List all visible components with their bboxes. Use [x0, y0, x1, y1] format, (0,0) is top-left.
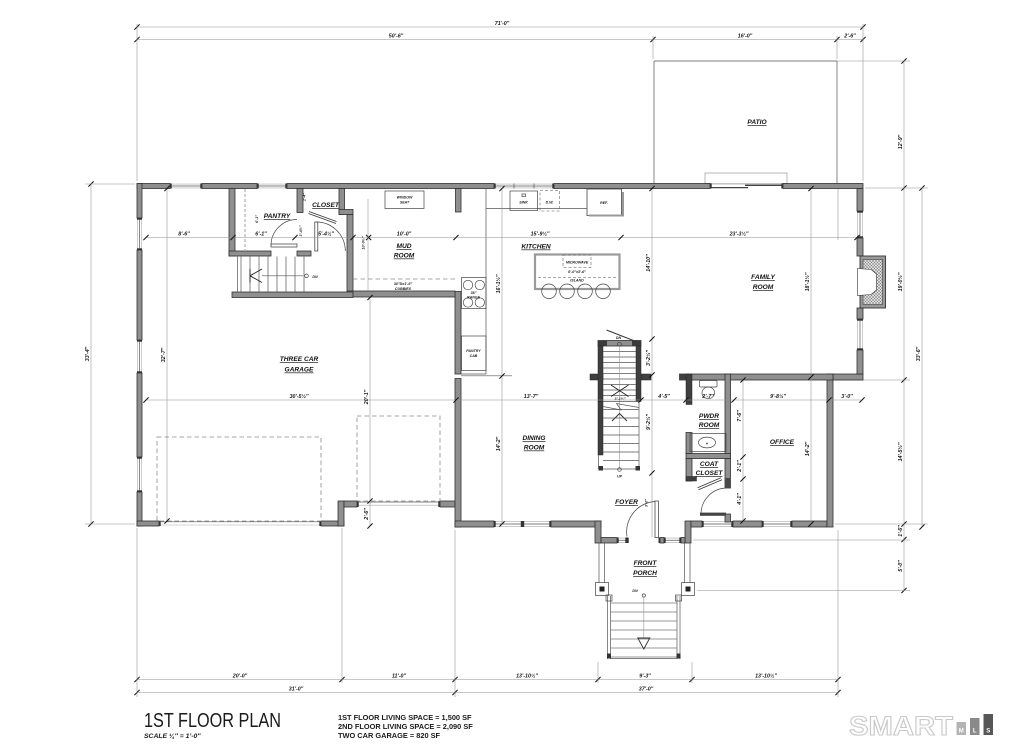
svg-text:OFFICE: OFFICE: [770, 439, 795, 446]
svg-text:4'-1″: 4'-1″: [737, 493, 743, 506]
svg-text:9'-3″: 9'-3″: [639, 673, 651, 679]
svg-text:ROOM: ROOM: [394, 253, 415, 260]
svg-text:14'-2″: 14'-2″: [805, 441, 811, 456]
svg-text:MUD: MUD: [396, 243, 411, 250]
svg-text:71'-0″: 71'-0″: [495, 21, 510, 27]
svg-text:31'-0″: 31'-0″: [289, 686, 304, 692]
svg-text:14'-2″: 14'-2″: [496, 436, 502, 451]
svg-text:WINDOW: WINDOW: [397, 196, 413, 200]
svg-text:3’-1½″: 3’-1½″: [615, 397, 626, 401]
svg-text:3'-2½″: 3'-2½″: [645, 350, 652, 366]
svg-text:2'-6″: 2'-6″: [364, 508, 370, 521]
svg-text:REF.: REF.: [600, 201, 608, 205]
svg-text:23'-3½″: 23'-3½″: [729, 230, 749, 237]
svg-text:ISLAND: ISLAND: [570, 279, 584, 283]
svg-text:1ST FLOOR PLAN: 1ST FLOOR PLAN: [144, 709, 281, 732]
svg-text:10’-0½″: 10’-0½″: [362, 236, 366, 249]
svg-text:D.W.: D.W.: [546, 201, 554, 205]
svg-text:11'-0″: 11'-0″: [392, 673, 406, 679]
svg-text:30'-5½″: 30'-5½″: [290, 393, 309, 400]
svg-text:33'-6″: 33'-6″: [916, 346, 922, 361]
svg-text:DN: DN: [312, 275, 318, 279]
svg-text:4'-5″: 4'-5″: [657, 394, 670, 400]
svg-text:5'-0″: 5'-0″: [898, 560, 904, 572]
svg-text:THREE CAR: THREE CAR: [280, 356, 319, 363]
svg-text:S: S: [986, 729, 990, 735]
svg-text:COAT: COAT: [700, 461, 719, 468]
svg-text:2'-7″: 2'-7″: [701, 394, 714, 400]
svg-text:14'-5½″: 14'-5½″: [897, 442, 904, 461]
svg-text:DINING: DINING: [522, 435, 545, 442]
svg-text:FOYER: FOYER: [615, 499, 638, 506]
svg-text:2'-1″: 2'-1″: [737, 460, 743, 473]
svg-text:PANTRY: PANTRY: [466, 349, 481, 353]
svg-text:33'-4″: 33'-4″: [85, 346, 91, 361]
svg-text:20'-1″: 20'-1″: [364, 389, 370, 405]
svg-text:16'-1½″: 16'-1½″: [495, 274, 502, 293]
svg-text:CLOSET: CLOSET: [696, 470, 724, 477]
svg-text:1ST FLOOR LIVING SPACE = 1,500: 1ST FLOOR LIVING SPACE = 1,500 SF: [338, 713, 472, 722]
svg-text:8’-0″x3’-6″: 8’-0″x3’-6″: [568, 270, 586, 274]
svg-text:DN: DN: [616, 336, 622, 340]
svg-text:20'-0″: 20'-0″: [232, 673, 248, 679]
svg-text:6’-1″: 6’-1″: [255, 215, 259, 223]
svg-text:8'-6″: 8'-6″: [178, 231, 190, 237]
svg-text:13'-7″: 13'-7″: [524, 394, 539, 400]
svg-text:CUBBIES: CUBBIES: [395, 287, 412, 291]
svg-text:37'-0″: 37'-0″: [639, 686, 654, 692]
svg-text:32'-7″: 32'-7″: [161, 347, 167, 362]
svg-text:3'-0″: 3'-0″: [841, 394, 853, 400]
svg-text:KITCHEN: KITCHEN: [521, 244, 551, 251]
svg-text:RANGE: RANGE: [467, 295, 481, 299]
svg-text:ROOM: ROOM: [524, 445, 545, 452]
svg-text:18'-1½″: 18'-1½″: [804, 272, 811, 291]
svg-text:30″Dx1’-6″: 30″Dx1’-6″: [394, 282, 413, 286]
svg-text:PORCH: PORCH: [633, 570, 657, 577]
svg-text:3’-4½″: 3’-4½″: [299, 225, 303, 236]
svg-text:ROOM: ROOM: [699, 422, 720, 429]
svg-text:TWO CAR GARAGE = 820 SF: TWO CAR GARAGE = 820 SF: [338, 731, 441, 740]
svg-text:36″: 36″: [471, 291, 477, 295]
svg-text:16'-0″: 16'-0″: [738, 33, 753, 39]
svg-text:FRONT: FRONT: [634, 560, 658, 567]
svg-text:2’-4″: 2’-4″: [303, 193, 307, 202]
svg-text:L: L: [973, 729, 977, 735]
svg-text:13'-10½″: 13'-10½″: [755, 672, 777, 679]
svg-text:PWDR: PWDR: [699, 413, 719, 420]
svg-text:DN: DN: [632, 589, 638, 593]
svg-text:2'-6″: 2'-6″: [843, 33, 856, 39]
svg-text:9'-2½″: 9'-2½″: [645, 414, 652, 430]
svg-text:9'-8½″: 9'-8½″: [770, 393, 786, 400]
svg-text:SINK: SINK: [519, 201, 528, 205]
svg-text:19'-0½″: 19'-0½″: [897, 272, 904, 291]
svg-text:ROOM: ROOM: [753, 284, 774, 291]
svg-text:FAMILY: FAMILY: [751, 274, 775, 281]
svg-text:MICROWAVE: MICROWAVE: [566, 261, 589, 265]
svg-text:M: M: [959, 729, 964, 735]
svg-text:15'-9½″: 15'-9½″: [531, 230, 550, 237]
svg-text:1'-6″: 1'-6″: [898, 525, 904, 537]
svg-text:12'-9″: 12'-9″: [898, 134, 904, 149]
svg-text:50'-6″: 50'-6″: [389, 33, 404, 39]
svg-text:10'-0″: 10'-0″: [397, 231, 412, 237]
svg-text:SEAT: SEAT: [400, 201, 410, 205]
svg-text:GARAGE: GARAGE: [285, 367, 315, 374]
svg-text:CAB: CAB: [470, 354, 478, 358]
svg-text:14'-10″: 14'-10″: [646, 254, 652, 272]
svg-text:PATIO: PATIO: [747, 119, 767, 126]
svg-text:6'-1″: 6'-1″: [255, 231, 267, 237]
svg-text:13'-10½″: 13'-10½″: [516, 672, 538, 679]
svg-text:CLOSET: CLOSET: [312, 202, 340, 209]
svg-text:3’-0″: 3’-0″: [645, 499, 649, 507]
svg-text:2ND FLOOR LIVING SPACE = 2,090: 2ND FLOOR LIVING SPACE = 2,090 SF: [338, 722, 473, 731]
svg-text:PANTRY: PANTRY: [264, 213, 291, 220]
svg-text:SMART: SMART: [849, 711, 954, 741]
svg-text:5'-4½″: 5'-4½″: [318, 230, 334, 237]
svg-text:SCALE ¼″ = 1’-0″: SCALE ¼″ = 1’-0″: [144, 733, 201, 740]
svg-text:7'-6″: 7'-6″: [737, 410, 743, 422]
svg-text:UP: UP: [617, 475, 623, 479]
